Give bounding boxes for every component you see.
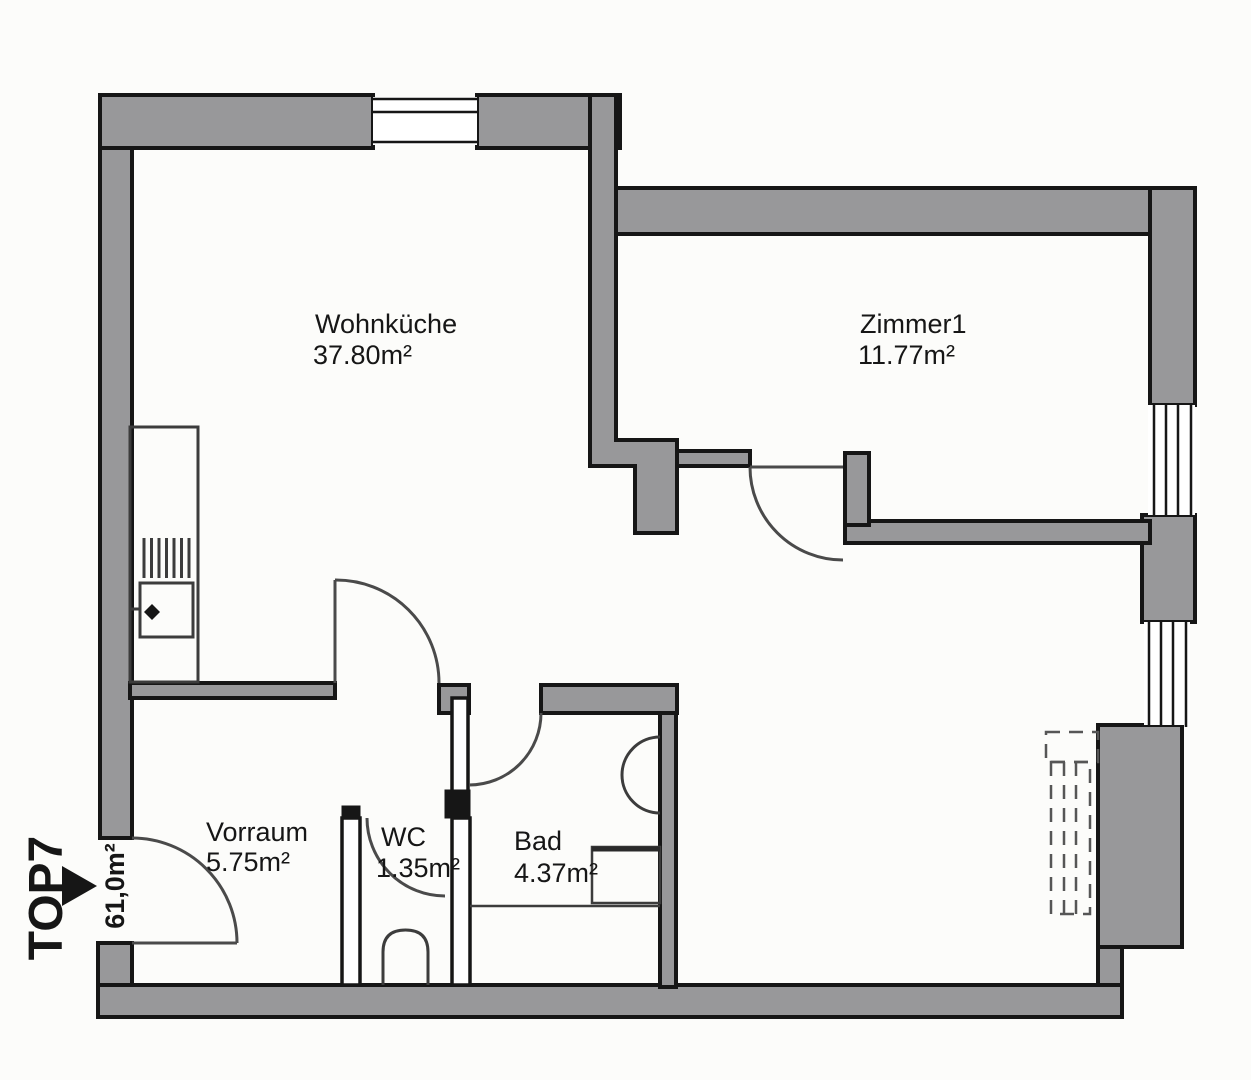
room-area-wc: 1.35m²: [376, 853, 460, 883]
wall-zimmer1-top: [612, 188, 1195, 234]
window-right-upper: [1148, 403, 1195, 517]
room-area-zimmer1: 11.77m²: [858, 340, 955, 370]
wall-wc-right-cap: [445, 790, 470, 818]
washer-icon: [592, 847, 660, 903]
bad-door: [469, 713, 541, 785]
toilet-icon: [383, 930, 428, 985]
boiler-icon: [131, 583, 193, 637]
room-label-wc: WC: [381, 822, 426, 852]
wall-wohnkueche-zimmer1: [590, 95, 677, 533]
wall-vorraum-bad-divider: [452, 698, 468, 792]
room-label-zimmer1: Zimmer1: [860, 309, 967, 339]
radiator-icon: [144, 538, 189, 578]
wall-right-lower: [1098, 725, 1182, 947]
room-area-bad: 4.37m²: [514, 858, 598, 888]
wall-zimmer1-bottom: [845, 521, 1150, 543]
room-label-vorraum: Vorraum: [206, 817, 308, 847]
window-right-lower: [1144, 620, 1190, 727]
basin-icon: [622, 737, 660, 813]
wall-bottom: [98, 985, 1122, 1017]
wall-wc-right: [452, 818, 470, 985]
room-label-bad: Bad: [514, 826, 562, 856]
wall-partition-vorraum: [130, 683, 335, 698]
wall-wc-left: [342, 818, 360, 985]
zimmer1-door: [750, 467, 843, 560]
unit-total-area: 61,0m²: [100, 843, 130, 929]
wall-left-upper: [100, 95, 132, 838]
wall-zimmer1-door-pillar: [845, 453, 869, 525]
room-label-wohnkueche: Wohnküche: [315, 309, 457, 339]
wohnkueche-door: [335, 580, 439, 683]
wall-top-left-segment: [100, 95, 373, 148]
shaft-dashed-outline: [1046, 732, 1098, 914]
floor-plan-drawing: Wohnküche 37.80m² Zimmer1 11.77m² Vorrau…: [0, 0, 1251, 1080]
wall-partition-bad-right: [541, 685, 677, 713]
room-area-vorraum: 5.75m²: [206, 847, 290, 877]
wall-bad-right: [660, 713, 676, 987]
entrance-arrow-icon: [62, 866, 97, 906]
wall-wc-left-cap: [342, 806, 360, 818]
wall-zimmer1-door-left: [677, 451, 750, 466]
wall-right-upper: [1150, 188, 1195, 405]
floor-plan: Wohnküche 37.80m² Zimmer1 11.77m² Vorrau…: [0, 0, 1251, 1080]
window-top: [371, 97, 479, 145]
room-area-wohnkueche: 37.80m²: [313, 340, 412, 370]
kitchen-unit: [130, 427, 198, 682]
